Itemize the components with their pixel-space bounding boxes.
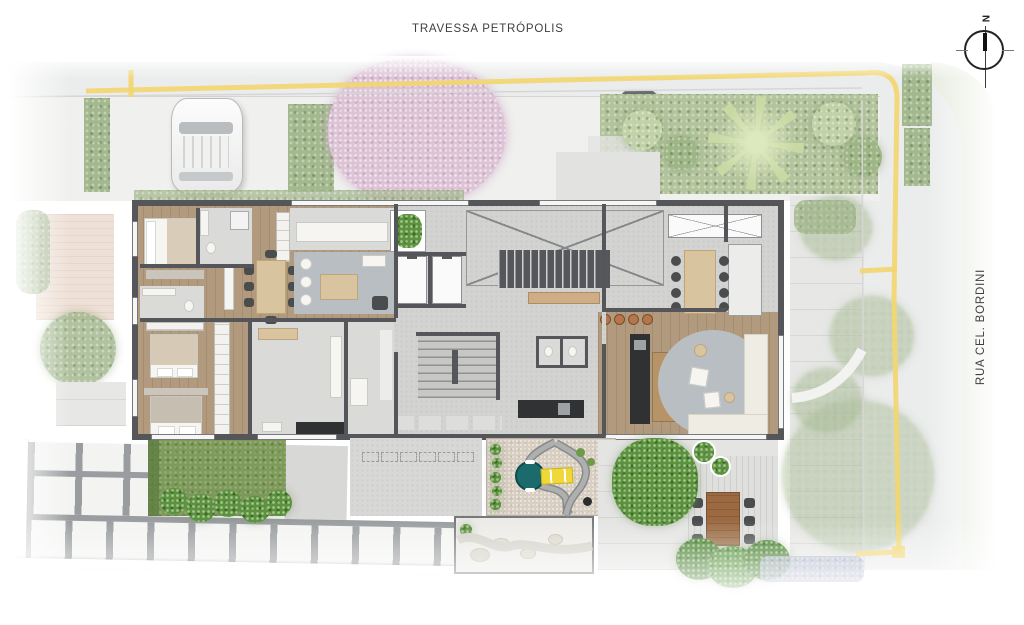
pool-bench <box>525 488 535 492</box>
road-marking-node <box>892 546 905 558</box>
compass-needle <box>983 33 987 51</box>
playground-bush <box>587 458 595 466</box>
road-marking-tick <box>860 269 897 271</box>
pool-bench <box>525 460 535 464</box>
compass-tick <box>956 50 968 51</box>
linework <box>0 0 1024 625</box>
street-label-top: TRAVESSA PETRÓPOLIS <box>412 23 564 35</box>
compass-tick <box>1002 50 1014 51</box>
site-plan: TRAVESSA PETRÓPOLIS RUA CEL. BORDINI N <box>0 0 1024 625</box>
street-label-right: RUA CEL. BORDINI <box>975 269 987 385</box>
curb-line <box>862 100 864 570</box>
garden-path <box>792 350 862 398</box>
zen-path <box>458 537 592 549</box>
north-arrow: N <box>958 14 1012 86</box>
slide <box>541 467 574 485</box>
playground-bush <box>576 448 585 457</box>
road-marking-main <box>86 72 899 556</box>
playground-table <box>583 497 592 506</box>
compass-north-label: N <box>980 15 991 23</box>
